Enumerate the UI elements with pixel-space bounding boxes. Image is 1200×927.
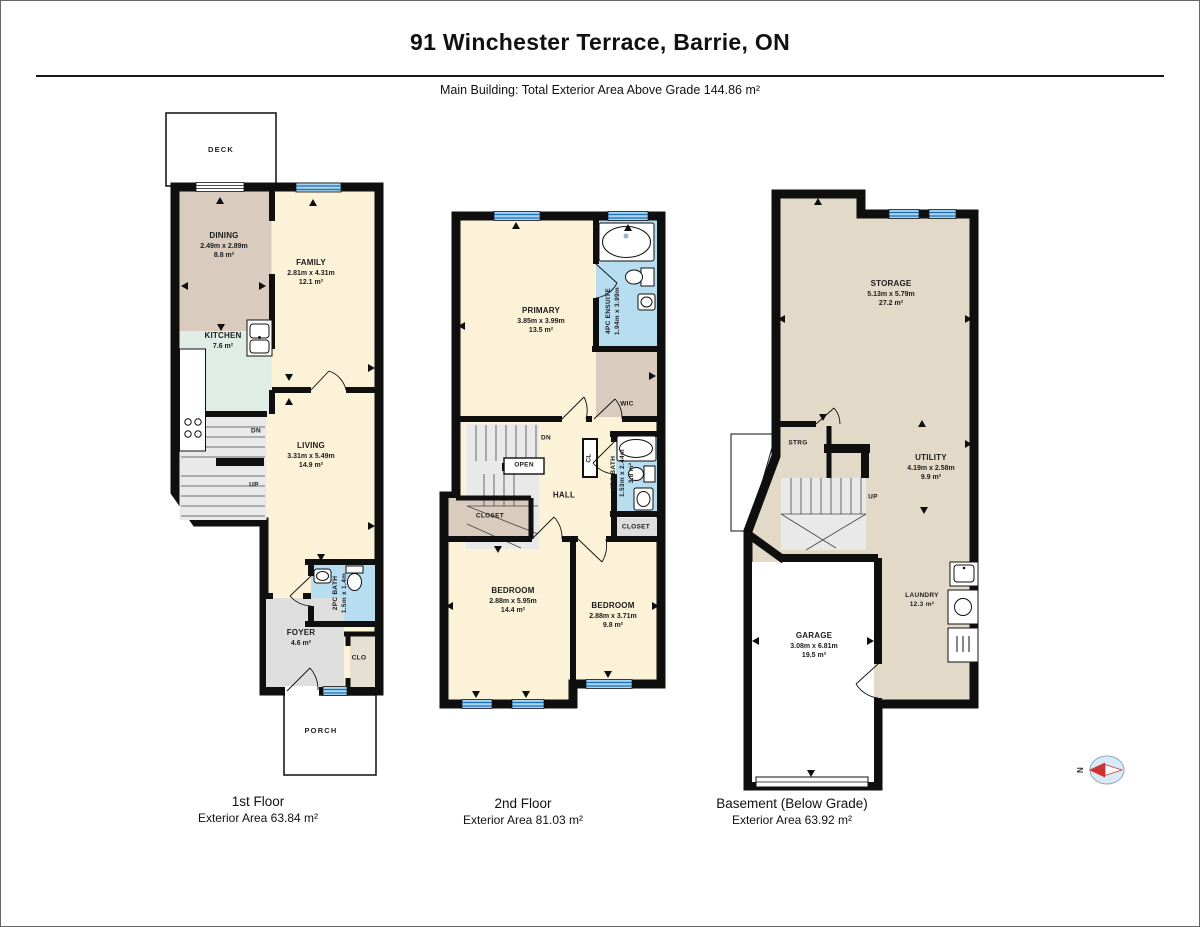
stairs-dn-label-f2: DN [541,435,551,444]
utility-label: UTILITY4.19m x 2.58m9.9 m² [907,453,954,483]
compass-icon: N [1077,749,1131,791]
stairs-up-label: UP [249,482,259,491]
bath-sink-icon [638,294,655,310]
floor2-caption-area: Exterior Area 81.03 m² [413,813,633,828]
garage-label: GARAGE3.08m x 6.81m19.5 m² [790,631,837,661]
floor1-caption-title: 1st Floor [148,794,368,811]
stairs-up-label-bsmt: UP [868,494,878,503]
basement-plan [726,186,991,801]
washer-icon [948,590,978,624]
basement-caption: Basement (Below Grade) Exterior Area 63.… [682,796,902,828]
bedroom1-label: BEDROOM2.88m x 5.95m14.4 m² [489,586,536,616]
window [494,212,540,221]
basement-caption-area: Exterior Area 63.92 m² [682,813,902,828]
window [929,210,956,219]
living-label: LIVING3.31m x 5.49m14.9 m² [287,441,334,471]
hall-label: HALL [553,491,575,502]
floor1-caption: 1st Floor Exterior Area 63.84 m² [148,794,368,826]
dryer-icon [948,628,978,662]
page-subtitle: Main Building: Total Exterior Area Above… [1,83,1199,97]
wic-label: WIC [620,401,634,410]
primary-label: PRIMARY3.85m x 3.99m13.5 m² [517,306,564,336]
bath-f2-label: 4PC BATH1.53m x 2.44m3.8 m² [610,449,636,497]
floor2-caption: 2nd Floor Exterior Area 81.03 m² [413,796,633,828]
family-label: FAMILY2.81m x 4.31m12.1 m² [287,258,334,288]
floor-plan-page: 91 Winchester Terrace, Barrie, ON Main B… [0,0,1200,927]
open-label: OPEN [514,462,534,471]
garage-door [756,777,868,787]
stairs-basement [781,478,866,550]
laundry-label: LAUNDRY12.3 m² [905,592,939,610]
window [586,680,632,689]
cl-label: CL [586,453,595,462]
window [608,212,648,221]
window [323,687,347,696]
powder-label: 2PC BATH1.5m x 1.4m [332,573,350,613]
bath-sink-icon [634,488,653,510]
bedroom2-label: BEDROOM2.88m x 3.71m9.8 m² [589,601,636,631]
stair-rail-f1 [216,458,264,466]
deck-label: DECK [208,145,234,155]
strg-label: STRG [788,440,807,449]
title-divider [36,75,1164,77]
porch-label: PORCH [304,726,337,736]
page-title: 91 Winchester Terrace, Barrie, ON [1,29,1199,56]
kitchen-label: KITCHEN7.6 m² [205,331,242,351]
window [512,700,544,709]
kitchen-sink-icon [247,320,272,356]
stairs-dn-label: DN [251,428,261,437]
window [889,210,919,219]
closet-left-label: CLOSET [476,513,504,522]
sliding-door [196,183,244,192]
window [462,700,492,709]
basement-caption-title: Basement (Below Grade) [682,796,902,813]
floor2-caption-title: 2nd Floor [413,796,633,813]
window [296,183,341,192]
room-dining [180,192,272,332]
foyer-label: FOYER4.6 m² [287,628,316,648]
ensuite-label: 4PC ENSUITE1.94m x 3.99m [605,287,623,335]
clo-label: CLO [352,655,367,664]
laundry-sink-icon [950,562,978,586]
compass-north-label: N [1076,767,1085,773]
closet-right-label: CLOSET [622,524,650,533]
laundry-fixtures [948,562,978,662]
storage-label: STORAGE5.13m x 5.79m27.2 m² [867,279,914,309]
dining-label: DINING2.49m x 2.89m8.8 m² [200,231,247,261]
room-garage [752,562,874,782]
floor1-caption-area: Exterior Area 63.84 m² [148,811,368,826]
floor1-plan [161,106,396,801]
